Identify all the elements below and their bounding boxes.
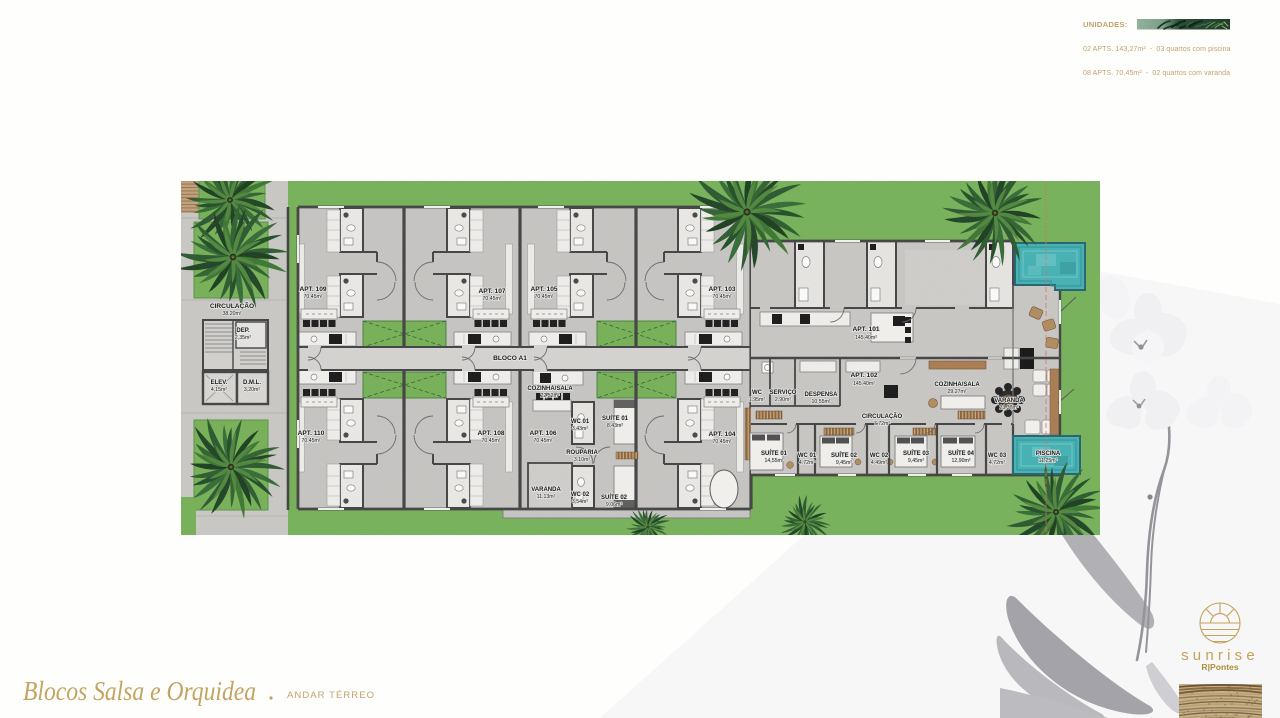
svg-text:WC 02: WC 02 [571,492,590,498]
svg-text:3,20m²: 3,20m² [244,387,260,393]
svg-text:70,45m²: 70,45m² [534,294,553,300]
svg-text:WC 02: WC 02 [870,453,889,459]
svg-text:ANDAR TÉRREO: ANDAR TÉRREO [287,690,377,701]
svg-text:70,45m²: 70,45m² [301,438,320,444]
svg-text:3,43m²: 3,43m² [572,426,588,432]
svg-text:70,45m²: 70,45m² [712,439,731,445]
svg-text:4,15m²: 4,15m² [211,387,227,393]
svg-text:VARANDA: VARANDA [531,487,561,493]
svg-text:SUÍTE 01: SUÍTE 01 [602,414,629,422]
svg-text:70,45m²: 70,45m² [712,294,731,300]
svg-text:145,40m²: 145,40m² [853,381,875,387]
svg-text:APT. 102: APT. 102 [850,372,877,379]
svg-text:4,72m²: 4,72m² [989,460,1005,466]
svg-text:1,95m²: 1,95m² [749,397,765,403]
svg-text:23,37m²: 23,37m² [999,405,1018,411]
svg-text:22,52m²: 22,52m² [540,393,559,399]
svg-text:70,45m²: 70,45m² [481,438,500,444]
svg-text:ELEV.: ELEV. [211,380,228,386]
svg-text:WC: WC [752,390,763,396]
svg-text:70,45m²: 70,45m² [533,438,552,444]
svg-text:APT. 110: APT. 110 [298,430,325,437]
svg-text:APT. 108: APT. 108 [477,430,504,437]
svg-text:9,06m²: 9,06m² [606,502,622,508]
svg-text:APT. 103: APT. 103 [708,286,735,293]
svg-text:APT. 109: APT. 109 [299,286,326,293]
svg-text:29,27m²: 29,27m² [947,389,966,395]
svg-text:SUÍTE 02: SUÍTE 02 [831,451,858,459]
svg-text:APT. 107: APT. 107 [478,288,505,295]
svg-text:SUÍTE 01: SUÍTE 01 [761,449,788,457]
svg-text:DEP.: DEP. [236,328,250,334]
svg-text:SUÍTE 04: SUÍTE 04 [948,449,975,457]
svg-text:08 APTS. 70,45m² - 02 quarto: 08 APTS. 70,45m² - 02 quartos com varand… [1083,70,1230,77]
svg-text:3,54m²: 3,54m² [572,499,588,505]
svg-text:APT. 101: APT. 101 [852,326,879,333]
svg-text:UNIDADES:: UNIDADES: [1083,20,1128,29]
svg-text:R|Pontes: R|Pontes [1201,662,1238,672]
svg-text:145,40m²: 145,40m² [855,335,877,341]
svg-text:14,55m²: 14,55m² [764,458,783,464]
svg-text:APT. 104: APT. 104 [708,431,735,438]
svg-text:APT. 106: APT. 106 [529,430,556,437]
svg-text:SERVIÇO: SERVIÇO [770,390,797,396]
svg-text:Blocos Salsa e Orquidea: Blocos Salsa e Orquidea [23,676,256,706]
svg-text:9,45m²: 9,45m² [908,458,924,464]
svg-text:WC 03: WC 03 [988,453,1007,459]
svg-text:COZINHA/SALA: COZINHA/SALA [934,382,980,388]
svg-text:7,72m²: 7,72m² [874,421,890,427]
svg-text:11,13m²: 11,13m² [537,494,556,500]
svg-text:2,90m²: 2,90m² [775,397,791,403]
svg-text:PISCINA: PISCINA [1036,451,1061,457]
svg-text:8,43m²: 8,43m² [607,423,623,429]
svg-text:2,35m²: 2,35m² [235,335,251,341]
svg-text:D.M.L.: D.M.L. [243,380,261,386]
svg-text:12,90m²: 12,90m² [951,458,970,464]
svg-text:DESPENSA: DESPENSA [804,392,838,398]
svg-text:10,55m²: 10,55m² [811,399,830,405]
svg-text:70,45m²: 70,45m² [482,296,501,302]
svg-text:02 APTS. 143,27m² - 03 quart: 02 APTS. 143,27m² - 03 quartos com pisci… [1083,46,1231,53]
svg-text:SUÍTE 02: SUÍTE 02 [601,493,628,501]
svg-text:WC 01: WC 01 [571,419,590,425]
svg-text:WC 01: WC 01 [798,453,817,459]
svg-text:3,10m²: 3,10m² [574,457,590,463]
svg-text:BLOCO A1: BLOCO A1 [493,355,527,362]
svg-text:CIRCULAÇÃO: CIRCULAÇÃO [210,301,254,310]
svg-text:CIRCULAÇÃO: CIRCULAÇÃO [862,413,903,420]
svg-text:11,25m²: 11,25m² [1039,458,1058,464]
svg-text:70,45m²: 70,45m² [303,294,322,300]
svg-text:4,72m²: 4,72m² [799,460,815,466]
svg-text:38,20m²: 38,20m² [222,311,241,317]
svg-text:VARANDA: VARANDA [994,398,1024,404]
svg-text:4,49m²: 4,49m² [871,460,887,466]
svg-text:9,45m²: 9,45m² [836,460,852,466]
svg-text:ROUPARIA: ROUPARIA [566,450,598,456]
svg-text:APT. 105: APT. 105 [530,286,557,293]
svg-text:COZINHA/SALA: COZINHA/SALA [527,386,573,392]
svg-text:SUÍTE 03: SUÍTE 03 [903,449,930,457]
